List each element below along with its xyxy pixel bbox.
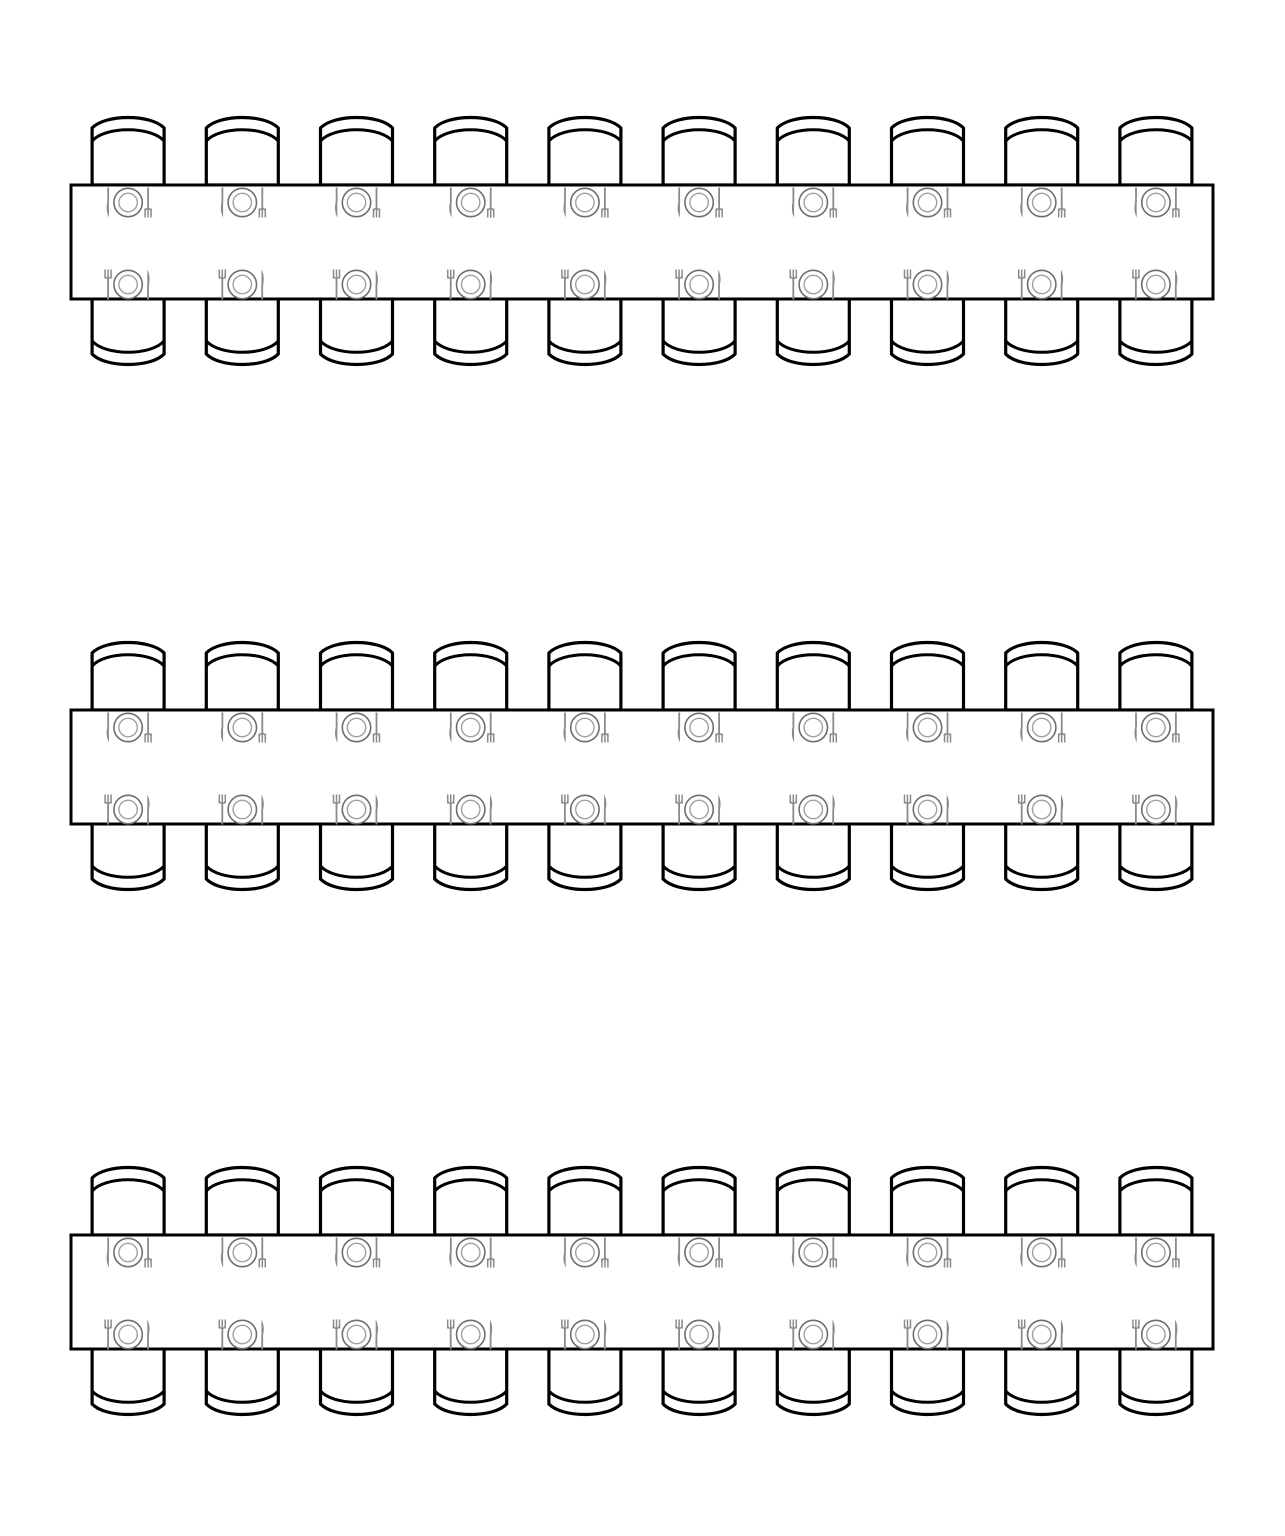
- chair-icon: [435, 118, 507, 186]
- plate-icon: [114, 188, 142, 216]
- plate-icon: [114, 795, 142, 823]
- chair-icon: [1120, 822, 1192, 890]
- chair-icon: [206, 822, 278, 890]
- plate-icon: [457, 1238, 485, 1266]
- plate-icon: [685, 270, 713, 298]
- chair-icon: [206, 118, 278, 186]
- plate-icon: [913, 188, 941, 216]
- plate-icon: [1028, 188, 1056, 216]
- plate-icon: [457, 713, 485, 741]
- plate-icon: [114, 1320, 142, 1348]
- chair-icon: [1120, 118, 1192, 186]
- plate-icon: [342, 188, 370, 216]
- chair-icon: [663, 297, 735, 365]
- plate-icon: [799, 795, 827, 823]
- plate-icon: [228, 188, 256, 216]
- plate-icon: [799, 270, 827, 298]
- chair-icon: [777, 118, 849, 186]
- chair-icon: [663, 118, 735, 186]
- chair-icon: [206, 643, 278, 711]
- plate-icon: [799, 1320, 827, 1348]
- plate-icon: [913, 1238, 941, 1266]
- chair-icon: [92, 822, 164, 890]
- plate-icon: [342, 713, 370, 741]
- plate-icon: [571, 1320, 599, 1348]
- plate-icon: [1142, 188, 1170, 216]
- plate-icon: [571, 795, 599, 823]
- plate-icon: [457, 188, 485, 216]
- plate-icon: [342, 270, 370, 298]
- chair-icon: [92, 118, 164, 186]
- chair-icon: [321, 822, 393, 890]
- plate-icon: [571, 270, 599, 298]
- plate-icon: [457, 795, 485, 823]
- chair-icon: [663, 1347, 735, 1415]
- chair-icon: [892, 822, 964, 890]
- chair-icon: [206, 297, 278, 365]
- chair-icon: [435, 1168, 507, 1236]
- chair-icon: [435, 643, 507, 711]
- plate-icon: [342, 795, 370, 823]
- plate-icon: [571, 713, 599, 741]
- plate-icon: [1142, 713, 1170, 741]
- chair-icon: [1120, 1347, 1192, 1415]
- plate-icon: [571, 1238, 599, 1266]
- chair-icon: [92, 297, 164, 365]
- chair-icon: [1120, 1168, 1192, 1236]
- chair-icon: [206, 1347, 278, 1415]
- chair-icon: [435, 297, 507, 365]
- plate-icon: [342, 1238, 370, 1266]
- plate-icon: [228, 713, 256, 741]
- chair-icon: [549, 822, 621, 890]
- chair-icon: [92, 643, 164, 711]
- plate-icon: [228, 795, 256, 823]
- chair-icon: [321, 118, 393, 186]
- plate-icon: [457, 1320, 485, 1348]
- chair-icon: [549, 1168, 621, 1236]
- chair-icon: [549, 297, 621, 365]
- chair-icon: [435, 822, 507, 890]
- chair-icon: [92, 1347, 164, 1415]
- plate-icon: [685, 713, 713, 741]
- plate-icon: [685, 188, 713, 216]
- chair-icon: [435, 1347, 507, 1415]
- plate-icon: [228, 1320, 256, 1348]
- chair-icon: [92, 1168, 164, 1236]
- chair-icon: [663, 1168, 735, 1236]
- plate-icon: [685, 1320, 713, 1348]
- table-1-group: [71, 118, 1213, 365]
- chair-icon: [1006, 297, 1078, 365]
- chair-icon: [549, 118, 621, 186]
- chair-icon: [777, 1168, 849, 1236]
- plate-icon: [114, 713, 142, 741]
- plate-icon: [1142, 1238, 1170, 1266]
- chair-icon: [663, 822, 735, 890]
- plate-icon: [799, 1238, 827, 1266]
- chair-icon: [1006, 643, 1078, 711]
- plate-icon: [1142, 1320, 1170, 1348]
- table-2-group: [71, 643, 1213, 890]
- chair-icon: [892, 1347, 964, 1415]
- chair-icon: [892, 118, 964, 186]
- plate-icon: [1028, 1320, 1056, 1348]
- chair-icon: [321, 297, 393, 365]
- chair-icon: [777, 643, 849, 711]
- plate-icon: [685, 1238, 713, 1266]
- banquet-floor-plan: [0, 0, 1285, 1536]
- plate-icon: [1028, 713, 1056, 741]
- plate-icon: [913, 270, 941, 298]
- plate-icon: [571, 188, 599, 216]
- chair-icon: [321, 1347, 393, 1415]
- plate-icon: [1028, 1238, 1056, 1266]
- chair-icon: [1006, 1347, 1078, 1415]
- plate-icon: [114, 270, 142, 298]
- chair-icon: [321, 1168, 393, 1236]
- plate-icon: [913, 1320, 941, 1348]
- plate-icon: [685, 795, 713, 823]
- plate-icon: [1028, 270, 1056, 298]
- plate-icon: [1142, 795, 1170, 823]
- plate-icon: [114, 1238, 142, 1266]
- plate-icon: [228, 1238, 256, 1266]
- plate-icon: [228, 270, 256, 298]
- chair-icon: [892, 1168, 964, 1236]
- chair-icon: [321, 643, 393, 711]
- plate-icon: [913, 713, 941, 741]
- chair-icon: [1120, 643, 1192, 711]
- chair-icon: [549, 1347, 621, 1415]
- chair-icon: [892, 297, 964, 365]
- plate-icon: [457, 270, 485, 298]
- plate-icon: [342, 1320, 370, 1348]
- chair-icon: [549, 643, 621, 711]
- chair-icon: [1006, 118, 1078, 186]
- chair-icon: [777, 822, 849, 890]
- plate-icon: [1028, 795, 1056, 823]
- chair-icon: [1006, 822, 1078, 890]
- plate-icon: [913, 795, 941, 823]
- plate-icon: [799, 188, 827, 216]
- chair-icon: [777, 1347, 849, 1415]
- chair-icon: [663, 643, 735, 711]
- chair-icon: [892, 643, 964, 711]
- plate-icon: [1142, 270, 1170, 298]
- chair-icon: [1120, 297, 1192, 365]
- plate-icon: [799, 713, 827, 741]
- chair-icon: [777, 297, 849, 365]
- chair-icon: [206, 1168, 278, 1236]
- table-3-group: [71, 1168, 1213, 1415]
- seating-plan-canvas: [0, 0, 1285, 1536]
- chair-icon: [1006, 1168, 1078, 1236]
